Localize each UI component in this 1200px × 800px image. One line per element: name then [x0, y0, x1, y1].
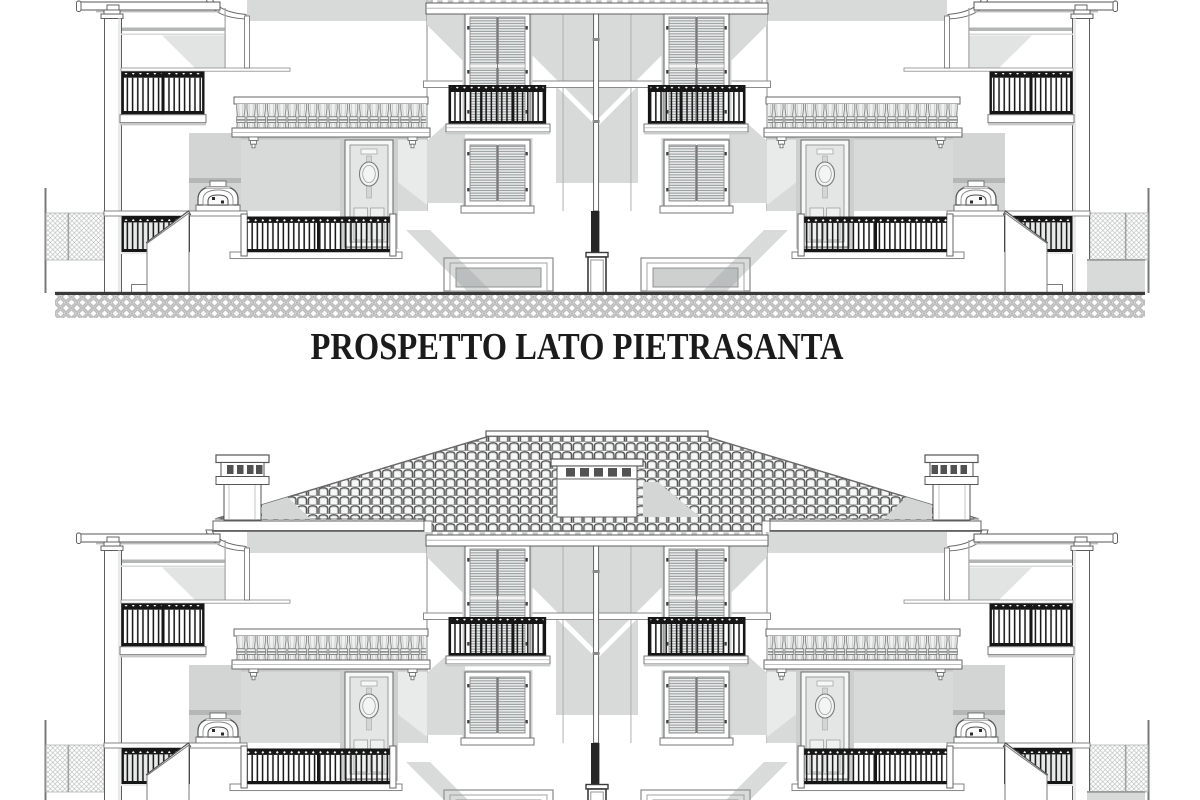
- svg-text:PROSPETTO LATO PIETRASANTA: PROSPETTO LATO PIETRASANTA: [311, 326, 844, 368]
